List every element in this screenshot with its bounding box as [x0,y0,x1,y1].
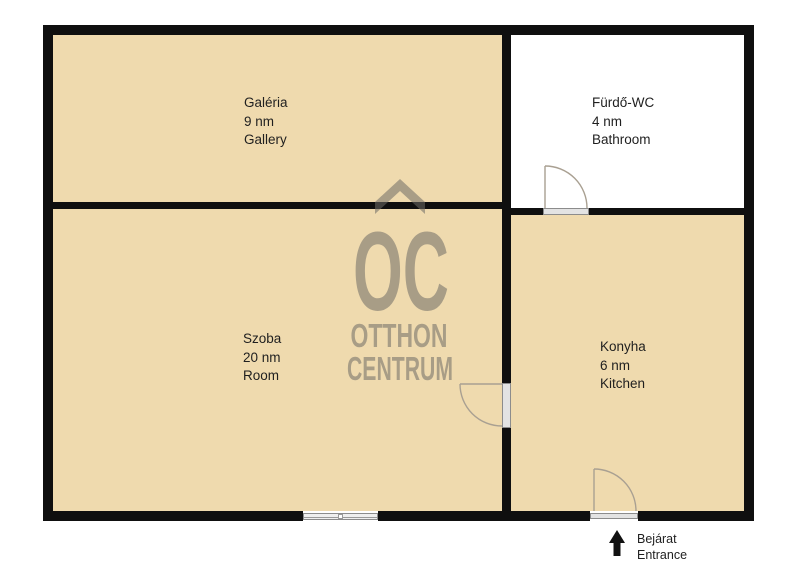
entrance-arrow-shape [609,530,625,556]
entrance-name-en: Entrance [637,548,687,564]
floorplan-canvas: OC OTTHON CENTRUM Galéria 9 nm Gallery F… [0,0,800,569]
entrance-arrow-icon [0,0,800,569]
label-entrance: Bejárat Entrance [637,532,687,563]
entrance-name-hu: Bejárat [637,532,687,548]
